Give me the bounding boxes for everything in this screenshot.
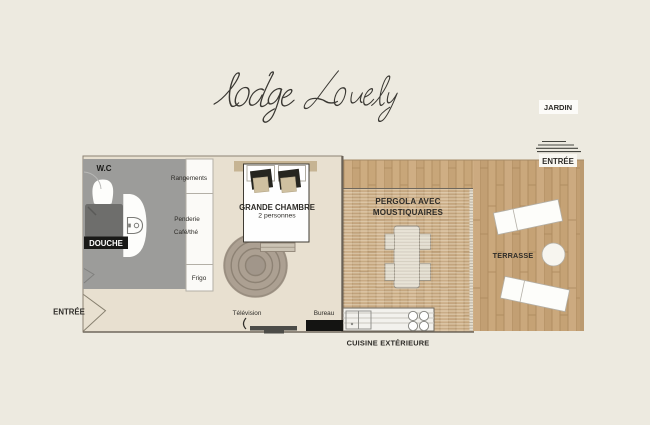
svg-text:ENTRÉE: ENTRÉE xyxy=(53,308,85,317)
svg-text:PERGOLA AVEC: PERGOLA AVEC xyxy=(375,197,440,206)
svg-text:JARDIN: JARDIN xyxy=(544,103,572,112)
svg-text:TERRASSE: TERRASSE xyxy=(493,251,534,260)
svg-text:MOUSTIQUAIRES: MOUSTIQUAIRES xyxy=(373,208,444,217)
svg-text:Penderie: Penderie xyxy=(174,216,200,223)
svg-text:DOUCHE: DOUCHE xyxy=(89,239,123,248)
svg-text:W.C: W.C xyxy=(96,164,111,173)
svg-text:2 personnes: 2 personnes xyxy=(258,213,296,220)
svg-text:CUISINE EXTÉRIEURE: CUISINE EXTÉRIEURE xyxy=(347,339,430,348)
svg-text:Rangements: Rangements xyxy=(171,175,207,182)
svg-text:Café/thé: Café/thé xyxy=(174,229,199,236)
svg-text:Bureau: Bureau xyxy=(314,310,335,317)
svg-text:ENTRÉE: ENTRÉE xyxy=(542,157,574,166)
svg-text:GRANDE CHAMBRE: GRANDE CHAMBRE xyxy=(239,203,315,212)
svg-text:Frigo: Frigo xyxy=(192,275,207,282)
svg-text:Télévision: Télévision xyxy=(233,310,262,317)
